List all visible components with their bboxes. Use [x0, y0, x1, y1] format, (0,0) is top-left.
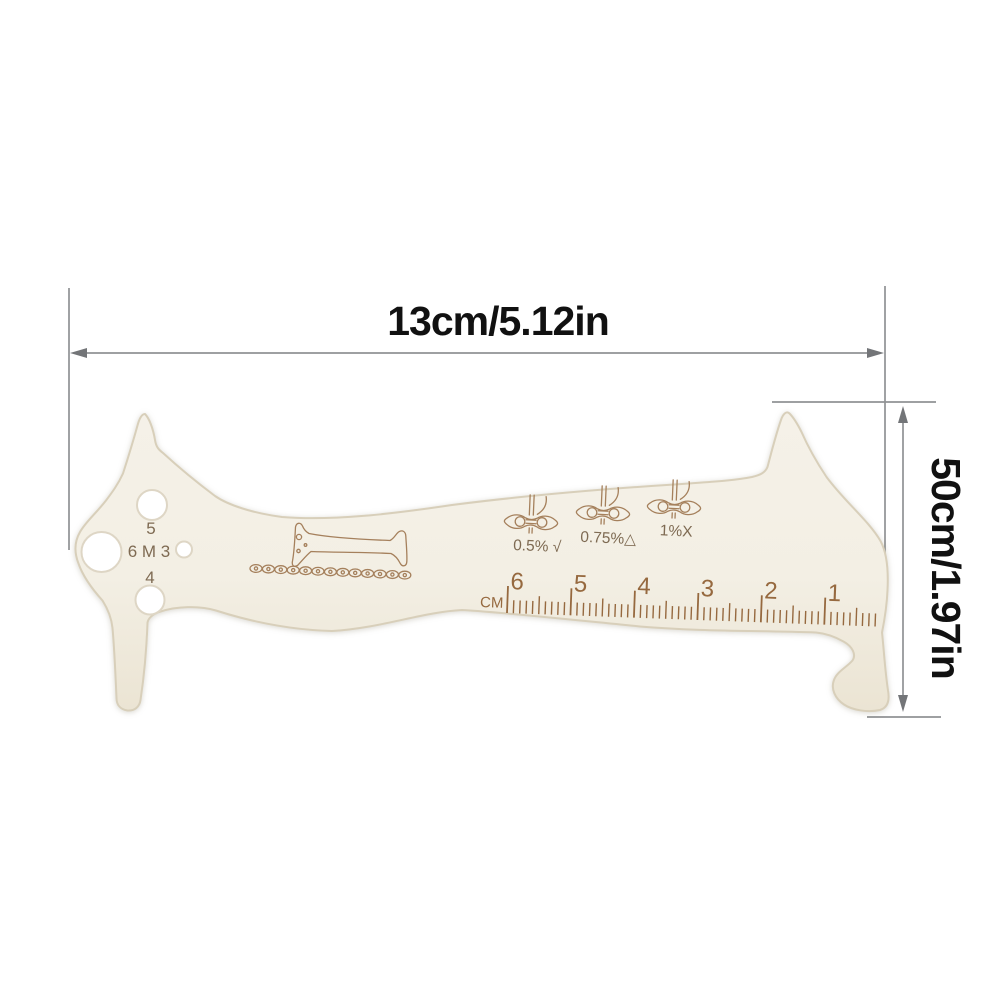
pin-hole-6 [82, 532, 122, 572]
ruler-unit-label: CM [480, 594, 504, 612]
pin-hole-5 [137, 490, 167, 520]
arrowhead-left-icon [70, 348, 87, 358]
ruler-tick [793, 605, 794, 623]
ruler-tick [634, 591, 635, 618]
ruler-tick [602, 599, 603, 617]
pin-hole-4 [136, 586, 165, 615]
product-image: 13cm/5.12in 50cm/1.97in 5 6 M 3 4 [0, 0, 1002, 1002]
ruler-number: 5 [573, 570, 587, 597]
ruler-tick [729, 603, 730, 621]
ruler-tick [761, 595, 762, 622]
arrowhead-right-icon [867, 348, 884, 358]
ruler-tick [697, 593, 698, 620]
pin-hole-3 [176, 542, 192, 558]
wear-mark-label-075: 0.75%△ [580, 529, 638, 548]
hole-label-row-bottom: 4 [145, 568, 154, 587]
ruler-tick [856, 608, 857, 626]
arrowhead-down-icon [898, 695, 908, 712]
ruler-tick [824, 598, 825, 625]
chain-checker-tool: 5 6 M 3 4 0.5% √ 0.75%△ 1%X CM 654321 [76, 412, 889, 711]
ruler-tick [666, 601, 667, 619]
width-dimension-label: 13cm/5.12in [387, 298, 609, 344]
ruler-tick [539, 596, 540, 614]
ruler-number: 3 [700, 575, 714, 602]
wear-mark-label-05: 0.5% √ [513, 537, 562, 556]
hole-label-row-middle: 6 M 3 [128, 542, 171, 561]
ruler-number: 6 [510, 568, 524, 595]
ruler-number: 4 [637, 573, 651, 600]
hole-label-row-top: 5 [146, 519, 155, 538]
arrowhead-up-icon [898, 406, 908, 423]
height-dimension-label: 50cm/1.97in [923, 457, 969, 679]
wear-mark-label-1: 1%X [659, 522, 693, 540]
ruler-tick [507, 586, 508, 613]
ruler-number: 2 [764, 577, 778, 604]
tool-outline [76, 412, 889, 711]
ruler-number: 1 [827, 580, 841, 607]
ruler-tick [570, 588, 571, 615]
chain-checker-figure: 13cm/5.12in 50cm/1.97in 5 6 M 3 4 [0, 0, 1002, 1002]
